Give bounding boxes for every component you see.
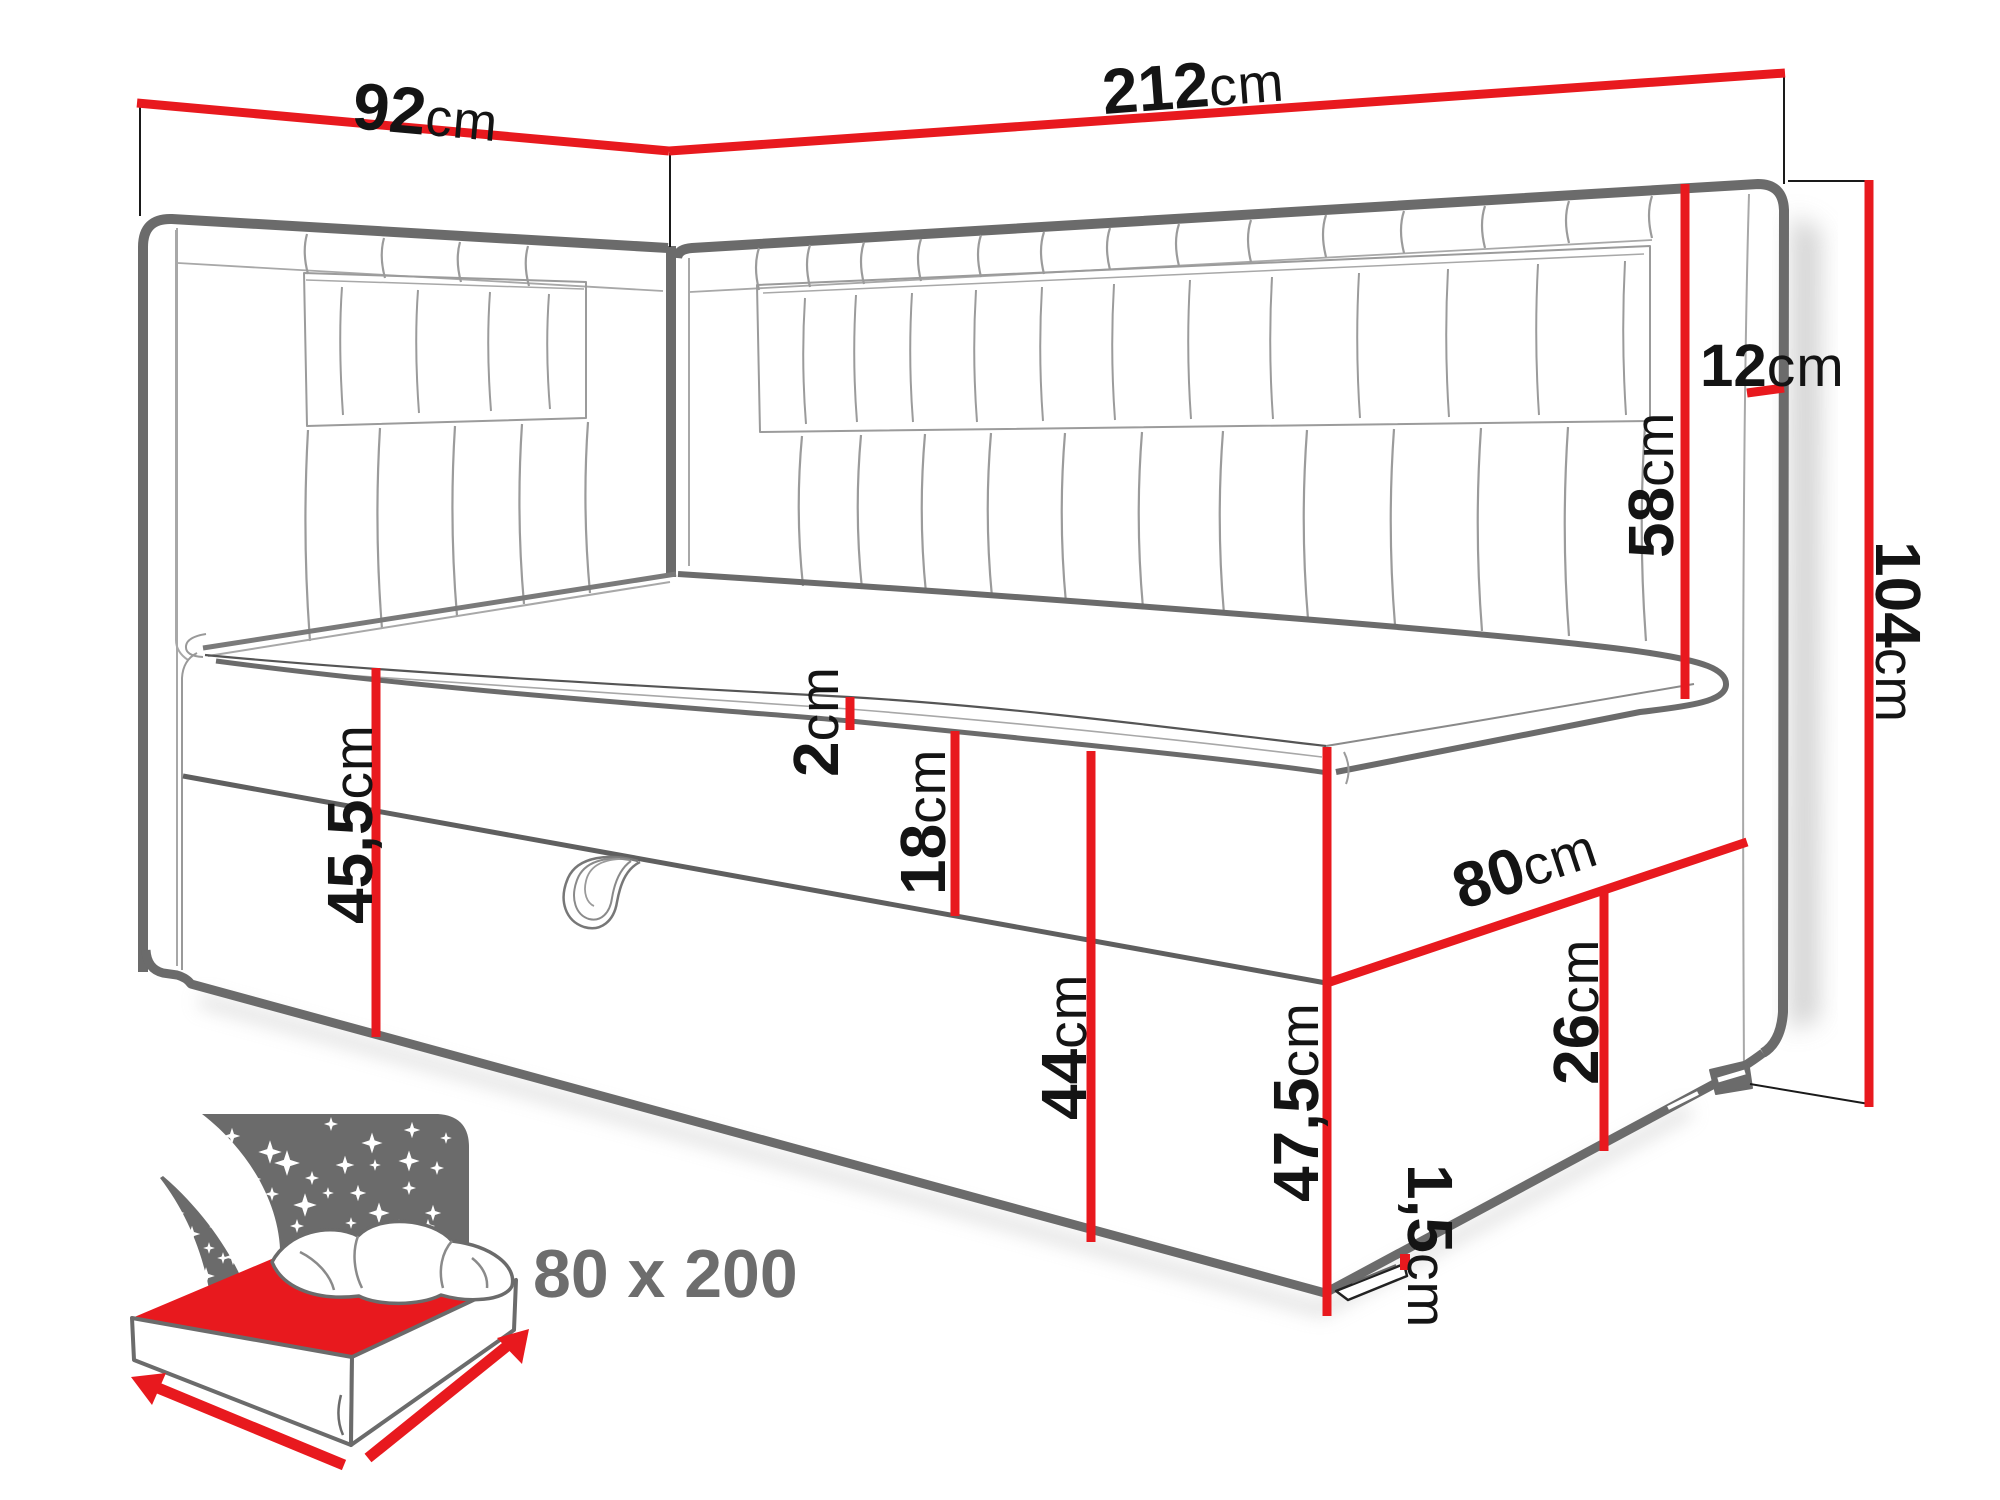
svg-text:12cm: 12cm: [1700, 332, 1845, 399]
svg-text:26cm: 26cm: [1540, 938, 1612, 1085]
svg-text:44cm: 44cm: [1028, 973, 1100, 1120]
svg-text:45,5cm: 45,5cm: [314, 724, 386, 924]
svg-text:80 x 200: 80 x 200: [533, 1236, 798, 1312]
svg-text:47,5cm: 47,5cm: [1260, 1002, 1332, 1202]
svg-text:58cm: 58cm: [1615, 411, 1687, 558]
svg-text:18cm: 18cm: [887, 748, 959, 895]
svg-text:2cm: 2cm: [780, 666, 852, 777]
svg-text:212cm: 212cm: [1100, 43, 1287, 128]
svg-text:80cm: 80cm: [1444, 809, 1606, 924]
svg-text:1,5cm: 1,5cm: [1394, 1164, 1466, 1328]
svg-text:104cm: 104cm: [1862, 541, 1934, 723]
svg-text:92cm: 92cm: [350, 68, 502, 155]
